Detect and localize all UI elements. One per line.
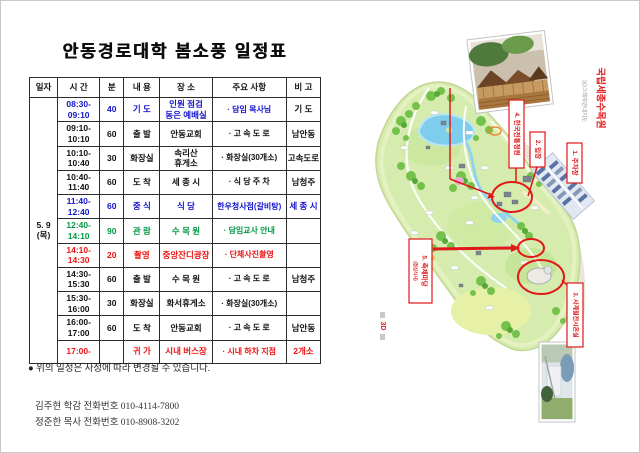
cell-min: 60: [100, 122, 124, 146]
cell-detail: · 화장실(30개소): [212, 146, 286, 170]
cell-min: 60: [100, 170, 124, 194]
cell-where: 속리산 휴게소: [160, 146, 212, 170]
header-cell: 시 간: [58, 78, 100, 98]
header-cell: 내 용: [124, 78, 160, 98]
schedule-body: 5. 9 (목)08:30- 09:1040기 도인원 점검 동은 예배실· 담…: [30, 98, 321, 364]
cell-note: 고속도로: [286, 146, 320, 170]
map-label-festival-sub: (점심식사): [412, 261, 419, 281]
cell-detail: · 담임교사 안내: [212, 219, 286, 243]
cell-detail: · 시내 하차 지점: [212, 340, 286, 363]
greenhouse-photo: [539, 342, 575, 422]
cell-detail: 한우청사점(갈비탕): [212, 195, 286, 219]
map-label-parking: 1. 주차장: [571, 150, 580, 175]
cell-note: [286, 219, 320, 243]
cell-min: 90: [100, 219, 124, 243]
cell-min: 60: [100, 195, 124, 219]
cell-what: 중 식: [124, 195, 160, 219]
cell-min: 40: [100, 98, 124, 122]
cell-time: 12:40- 14:10: [58, 219, 100, 243]
cell-note: 남안동: [286, 122, 320, 146]
map-3d-logo: 3D: [379, 322, 386, 331]
schedule-row: 11:40- 12:4060중 식식 당한우청사점(갈비탕)세 종 시: [30, 195, 321, 219]
cell-where: 안동교회: [160, 122, 212, 146]
cell-detail: · 식 당 주 차: [212, 170, 286, 194]
map-subtitle: 3D그래픽안내지도: [581, 80, 589, 122]
cell-where: 세 종 시: [160, 170, 212, 194]
logo-mark: [380, 334, 385, 340]
cell-what: 도 착: [124, 316, 160, 340]
schedule-header-row: 일자시 간분내 용장 소주요 사항비 고: [30, 78, 321, 98]
schedule-table: 일자시 간분내 용장 소주요 사항비 고 5. 9 (목)08:30- 09:1…: [29, 77, 321, 364]
header-cell: 주요 사항: [212, 78, 286, 98]
logo-mark: [380, 312, 385, 318]
cell-time: 15:30- 16:00: [58, 292, 100, 316]
schedule-row: 10:40- 11:4060도 착세 종 시· 식 당 주 차남청주: [30, 170, 321, 194]
lake-island: [446, 127, 452, 133]
cell-where: 인원 점검 동은 예배실: [160, 98, 212, 122]
schedule-row: 12:40- 14:1090관 람수 목 원· 담임교사 안내: [30, 219, 321, 243]
page: 안동경로대학 봄소풍 일정표 일자시 간분내 용장 소주요 사항비 고 5. 9…: [0, 0, 640, 453]
cell-note: 남청주: [286, 170, 320, 194]
cell-what: 출 발: [124, 122, 160, 146]
schedule-row: 09:10- 10:1060출 발안동교회· 고 속 도 로남안동: [30, 122, 321, 146]
cell-detail: · 단체사진촬영: [212, 243, 286, 267]
header-cell: 분: [100, 78, 124, 98]
cell-time: 08:30- 09:10: [58, 98, 100, 122]
cell-detail: · 고 속 도 로: [212, 316, 286, 340]
cell-what: 촬영: [124, 243, 160, 267]
schedule-row: 15:30- 16:0030화장실화서휴게소· 화장실(30개소): [30, 292, 321, 316]
schedule-row: 10:10- 10:4030화장실속리산 휴게소· 화장실(30개소)고속도로: [30, 146, 321, 170]
contacts: 김주현 학감 전화번호 010-4114-7800 정준한 목사 전화번호 01…: [35, 399, 179, 431]
cell-where: 중앙잔디광장: [160, 243, 212, 267]
contact-line-1: 김주현 학감 전화번호 010-4114-7800: [35, 399, 179, 415]
map-label-garden: 4. 한국전통정원: [513, 112, 522, 155]
cell-time: 16:00- 17:00: [58, 316, 100, 340]
cell-note: 세 종 시: [286, 195, 320, 219]
cell-what: 기 도: [124, 98, 160, 122]
map-label-greenhouse: 3. 사계절전시온실: [571, 292, 579, 338]
cell-detail: · 고 속 도 로: [212, 267, 286, 291]
cell-where: 수 목 원: [160, 267, 212, 291]
contact-line-2: 정준한 목사 전화번호 010-8908-3202: [35, 415, 179, 431]
schedule-row: 16:00- 17:0060도 착안동교회· 고 속 도 로남안동: [30, 316, 321, 340]
cell-time: 09:10- 10:10: [58, 122, 100, 146]
date-cell: 5. 9 (목): [30, 98, 58, 364]
footer-note: ● 위의 일정은 사정에 따라 변경될 수 있습니다.: [28, 360, 210, 374]
arboretum-map: 1. 주차장 2. 입장 3. 사계절전시온실 4. 한국전통정원 5. 축제마…: [371, 26, 640, 446]
cell-where: 화서휴게소: [160, 292, 212, 316]
cell-detail: · 담임 목사님: [212, 98, 286, 122]
cell-time: 10:10- 10:40: [58, 146, 100, 170]
cell-note: [286, 292, 320, 316]
map-title: 국립세종수목원: [594, 67, 606, 128]
label5-arrow-line: [433, 248, 513, 249]
schedule-row: 14:10- 14:3020촬영중앙잔디광장· 단체사진촬영: [30, 243, 321, 267]
cell-time: 10:40- 11:40: [58, 170, 100, 194]
map-label-entrance: 2. 입장: [534, 140, 543, 159]
cell-where: 안동교회: [160, 316, 212, 340]
cell-min: 30: [100, 146, 124, 170]
cell-what: 화장실: [124, 292, 160, 316]
cell-time: 11:40- 12:40: [58, 195, 100, 219]
schedule-row: 14:30- 15:3060출 발수 목 원· 고 속 도 로남청주: [30, 267, 321, 291]
page-title: 안동경로대학 봄소풍 일정표: [25, 37, 325, 62]
cell-what: 도 착: [124, 170, 160, 194]
cell-where: 수 목 원: [160, 219, 212, 243]
cell-time: 14:10- 14:30: [58, 243, 100, 267]
cell-what: 화장실: [124, 146, 160, 170]
cell-what: 출 발: [124, 267, 160, 291]
header-cell: 비 고: [286, 78, 320, 98]
cell-min: 60: [100, 316, 124, 340]
cell-where: 식 당: [160, 195, 212, 219]
cell-note: 남청주: [286, 267, 320, 291]
greenhouse-dome: [544, 266, 552, 274]
cell-note: 남안동: [286, 316, 320, 340]
cell-detail: · 화장실(30개소): [212, 292, 286, 316]
schedule-row: 5. 9 (목)08:30- 09:1040기 도인원 점검 동은 예배실· 담…: [30, 98, 321, 122]
cell-min: 20: [100, 243, 124, 267]
header-cell: 일자: [30, 78, 58, 98]
cell-detail: · 고 속 도 로: [212, 122, 286, 146]
cell-note: 기 도: [286, 98, 320, 122]
cell-note: [286, 243, 320, 267]
header-cell: 장 소: [160, 78, 212, 98]
map-label-festival: 5. 축제마당: [420, 255, 429, 286]
cell-min: 60: [100, 267, 124, 291]
cell-note: 2개소: [286, 340, 320, 363]
patch: [447, 202, 515, 250]
cell-min: 30: [100, 292, 124, 316]
cell-what: 관 람: [124, 219, 160, 243]
cell-time: 14:30- 15:30: [58, 267, 100, 291]
